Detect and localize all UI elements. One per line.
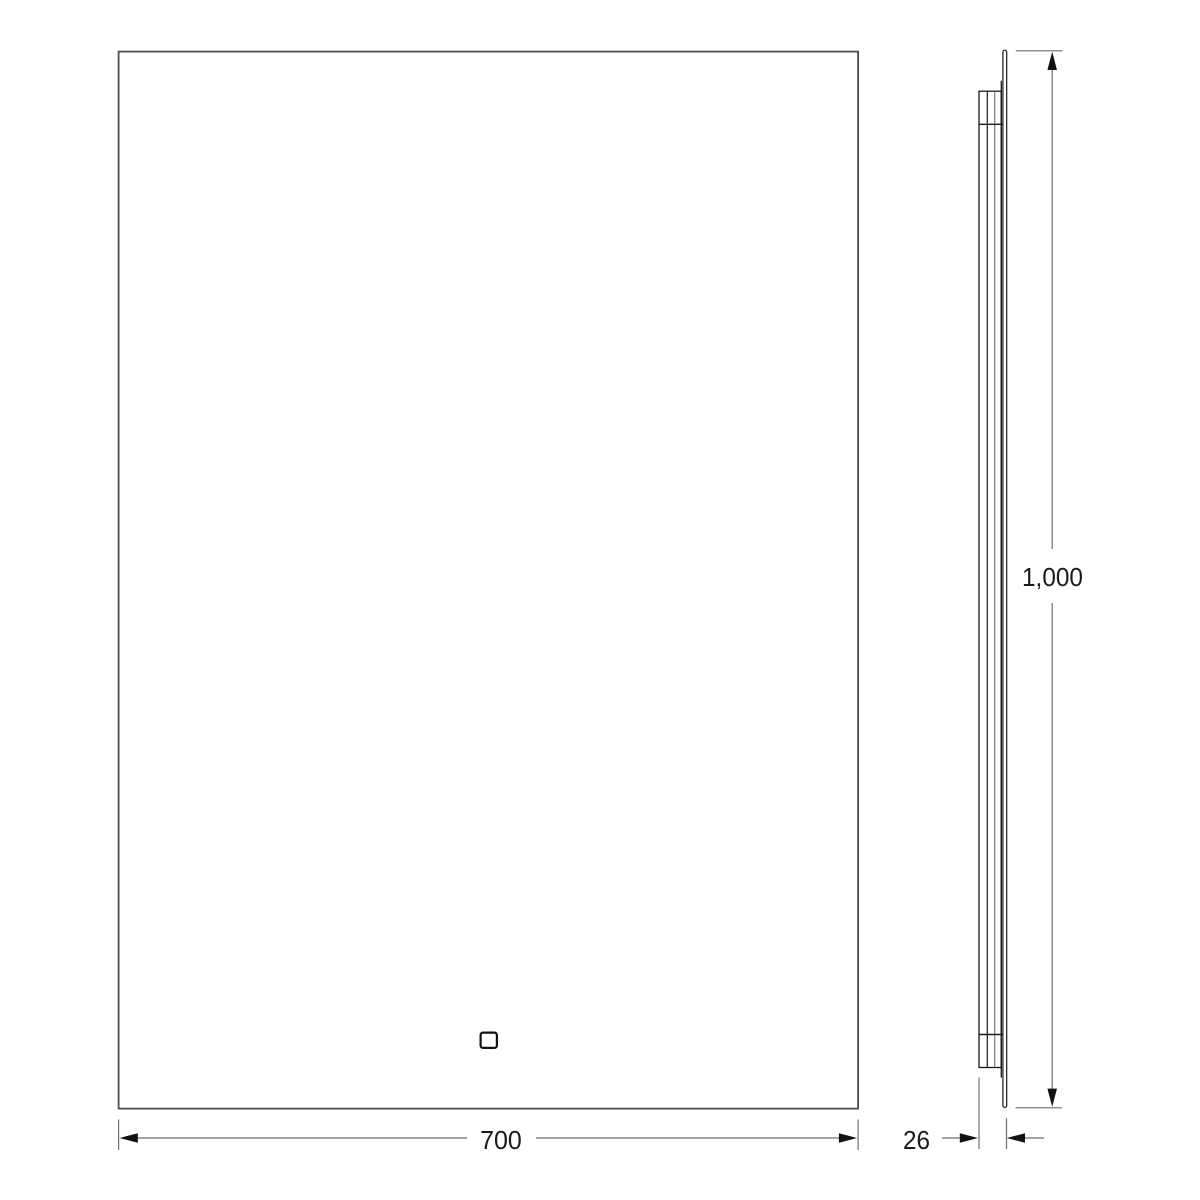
svg-text:26: 26 <box>903 1125 930 1155</box>
svg-text:700: 700 <box>480 1125 522 1155</box>
svg-text:1,000: 1,000 <box>1022 562 1083 592</box>
